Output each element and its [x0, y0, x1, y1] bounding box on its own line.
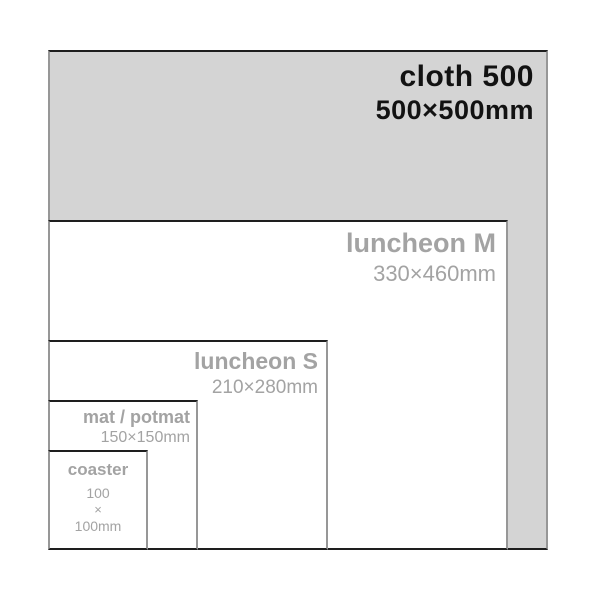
coaster-label: coaster: [50, 459, 146, 480]
cloth-500-labels: cloth 500 500×500mm: [376, 52, 546, 127]
coaster-labels: coaster 100 × 100mm: [50, 452, 146, 535]
luncheon-m-label: luncheon M: [346, 228, 496, 259]
luncheon-m-dimensions: 330×460mm: [346, 259, 496, 289]
mat-potmat-labels: mat / potmat 150×150mm: [83, 402, 196, 448]
cloth-500-dimensions: 500×500mm: [376, 94, 534, 127]
coaster-box: coaster 100 × 100mm: [48, 450, 148, 550]
luncheon-s-labels: luncheon S 210×280mm: [194, 342, 326, 401]
luncheon-s-label: luncheon S: [194, 347, 318, 375]
cloth-500-label: cloth 500: [376, 59, 534, 94]
luncheon-s-dimensions: 210×280mm: [194, 375, 318, 401]
size-comparison-diagram: cloth 500 500×500mm luncheon M 330×460mm…: [0, 0, 600, 600]
luncheon-m-labels: luncheon M 330×460mm: [346, 222, 506, 289]
coaster-dimension-height: 100mm: [50, 517, 146, 535]
mat-potmat-label: mat / potmat: [83, 406, 190, 428]
mat-potmat-dimensions: 150×150mm: [83, 428, 190, 448]
coaster-dimension-width: 100: [50, 484, 146, 502]
coaster-multiply-sign: ×: [50, 502, 146, 517]
